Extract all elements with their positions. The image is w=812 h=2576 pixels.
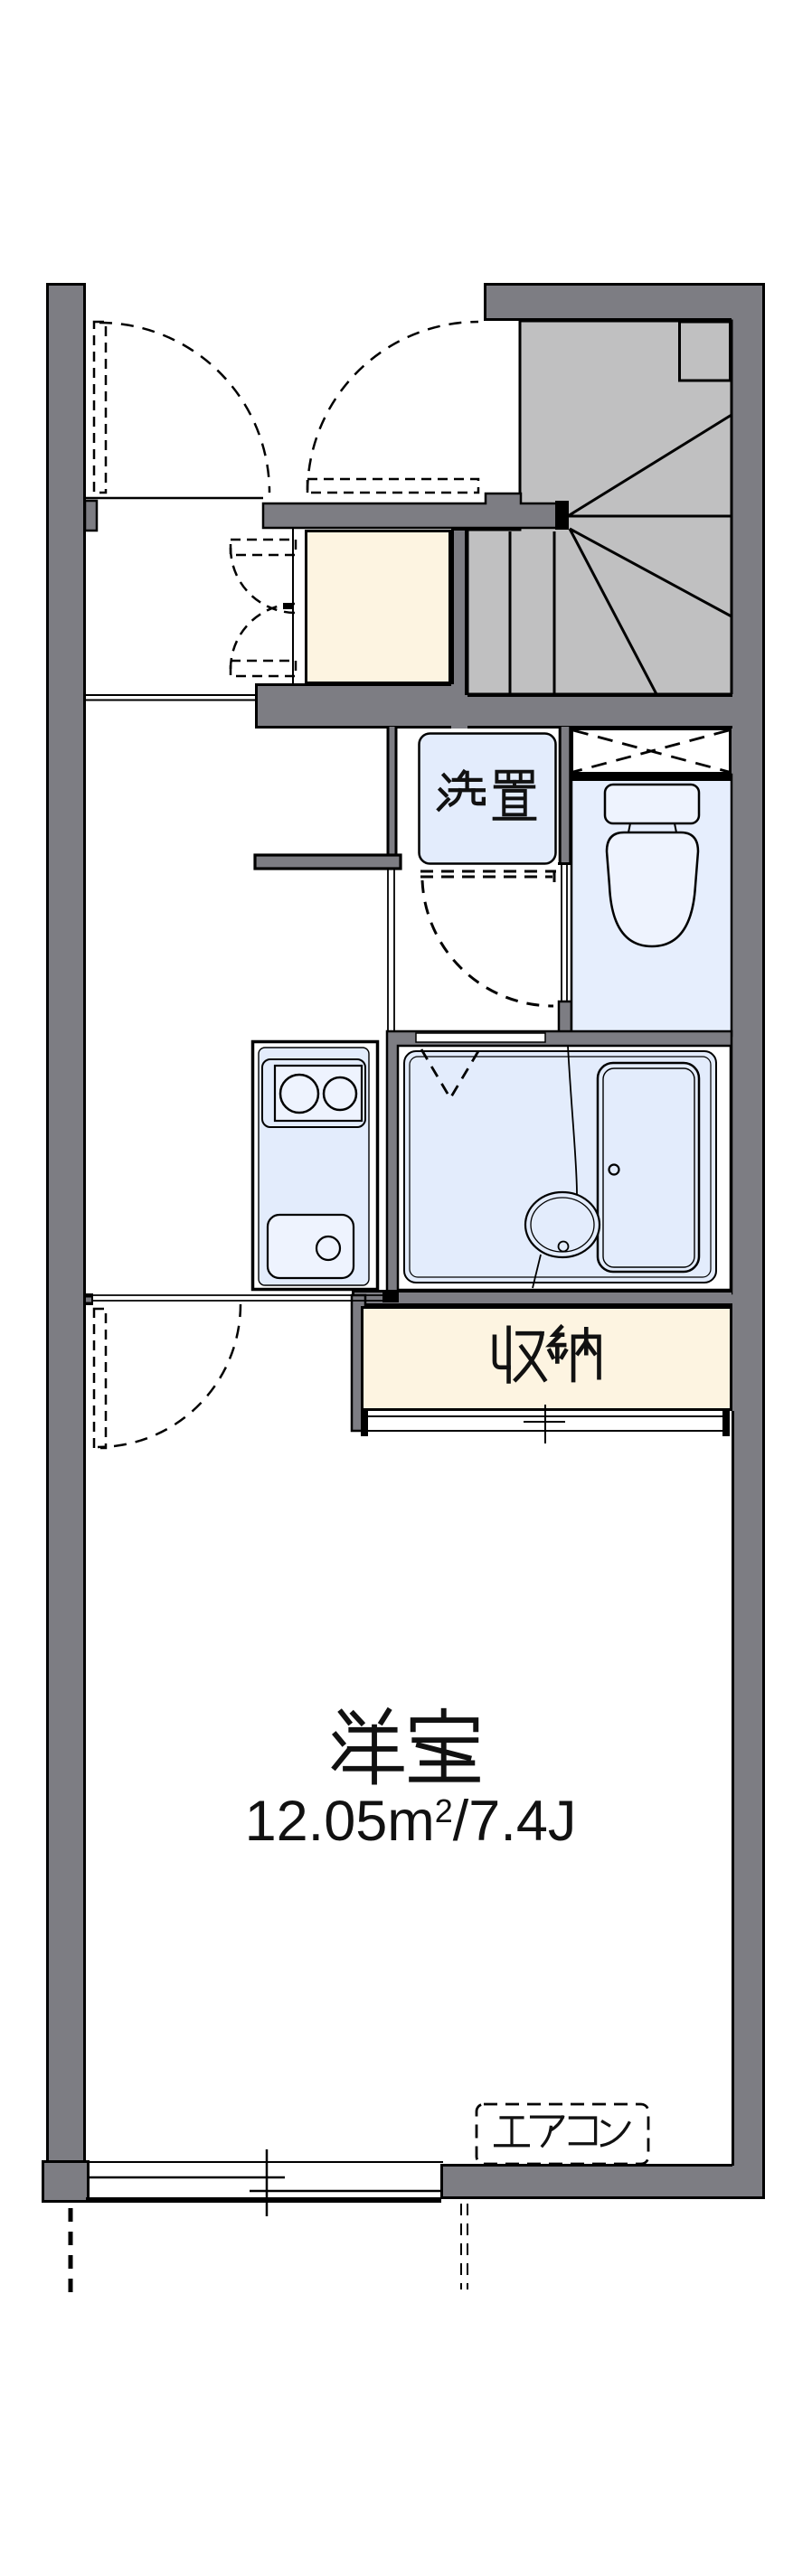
svg-text:12.05m2/7.4J: 12.05m2/7.4J <box>245 1790 577 1853</box>
